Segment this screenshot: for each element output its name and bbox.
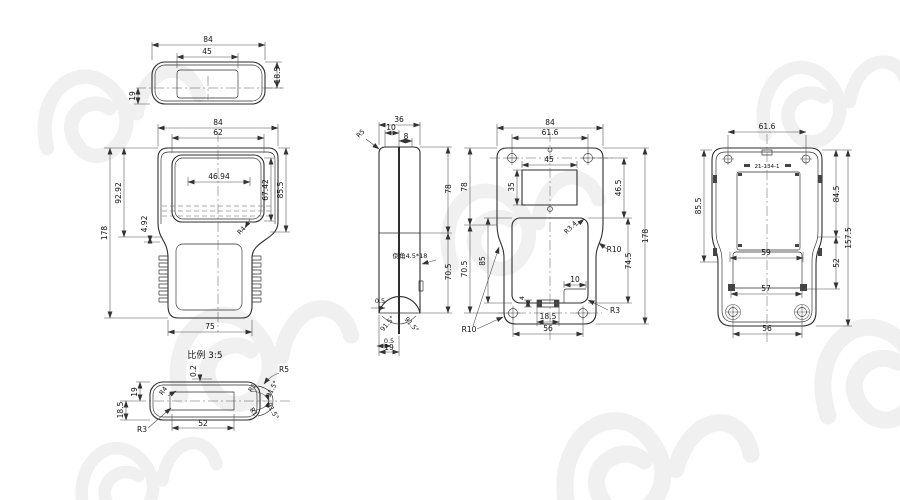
label-r5: R5: [279, 365, 289, 374]
label-91.5-right: 91.5°: [403, 315, 421, 334]
dim-46.94: 46.94: [208, 172, 230, 181]
dim-84: 84: [545, 118, 555, 127]
scale-label: 比例 3:5: [187, 349, 222, 361]
view-front: 84 62 46.94 67.42 85.5 92.92 4.92 178 75…: [100, 118, 290, 336]
label-r3: R3: [610, 306, 620, 315]
dim-8: 8: [404, 132, 409, 141]
snap-boss: [728, 284, 735, 291]
dim-45: 45: [544, 155, 554, 164]
engineering-drawing-page: 84 45 19 18.5 84: [0, 0, 900, 500]
snap-boss: [800, 284, 807, 291]
dim-75: 75: [205, 322, 215, 331]
dim-35: 35: [507, 182, 516, 192]
dim-46.5: 46.5: [614, 179, 623, 196]
dim-178: 178: [100, 226, 109, 241]
chamfer-note: 倒角4.5*18: [393, 251, 428, 260]
dim-18.5: 18.5: [273, 66, 282, 83]
dim-18.5: 18.5: [540, 312, 557, 321]
label-91.5-bottom: 91.5°: [265, 401, 280, 420]
cover-battery-door: [733, 252, 802, 288]
compartment-step: [564, 289, 586, 303]
dim-52: 52: [832, 258, 841, 268]
dim-59: 59: [761, 248, 771, 257]
cover-pcb-area: [737, 172, 800, 250]
label-r3.4: R3.4: [563, 220, 579, 236]
dim-4: 4: [518, 296, 526, 300]
view-cover: 61.6 21-134-1 85.5 84.5 52 157.5 59 57 5…: [694, 122, 853, 342]
label-r4: R4: [158, 385, 170, 397]
dim-4.92: 4.92: [140, 215, 149, 232]
cad-drawing-canvas: 84 45 19 18.5 84: [0, 0, 900, 500]
label-91.5-left: 91.5°: [379, 314, 397, 333]
dim-157.5: 157.5: [844, 227, 853, 249]
dim-70.5: 70.5: [444, 263, 453, 280]
dim-70.5: 70.5: [460, 260, 469, 277]
dim-61.6: 61.6: [759, 122, 776, 131]
label-r10-left: R10: [462, 325, 477, 334]
dim-45: 45: [202, 47, 212, 56]
dim-0.2: 0.2: [189, 365, 198, 377]
view-side: 36 10 8 R5 78 70.5 倒角4.5*18 0.5 91.5° 91…: [355, 115, 453, 356]
dim-0.5-top: 0.5: [375, 297, 385, 305]
dim-61.6: 61.6: [542, 128, 559, 137]
dim-19: 19: [130, 387, 139, 397]
dim-78: 78: [444, 184, 453, 194]
part-number: 21-134-1: [755, 164, 780, 170]
dim-62: 62: [213, 128, 223, 137]
dim-10: 10: [570, 275, 580, 284]
dim-178: 178: [641, 229, 650, 244]
dim-84: 84: [203, 35, 213, 44]
dim-56: 56: [762, 324, 772, 333]
front-grip-ribs: [159, 256, 261, 302]
view-top: 84 45 19 18.5: [128, 35, 284, 104]
dim-67.42: 67.42: [261, 179, 270, 201]
dim-92.92: 92.92: [114, 182, 123, 204]
front-lower-opening: [176, 244, 242, 310]
dim-84.5: 84.5: [832, 185, 841, 202]
view-back: 84 61.6 45 35 46.5 78 70.5 85 178 74.5 R…: [460, 118, 650, 340]
dim-85.5: 85.5: [694, 197, 703, 214]
dim-74.5: 74.5: [624, 252, 633, 269]
dim-52: 52: [198, 419, 208, 428]
label-r5: R5: [355, 128, 367, 140]
dim-56: 56: [543, 324, 553, 333]
dim-19: 19: [384, 343, 394, 352]
dim-18.5: 18.5: [116, 401, 125, 418]
label-r10-right: R10: [607, 245, 622, 254]
dim-10: 10: [386, 123, 396, 132]
dim-84: 84: [213, 118, 223, 127]
dim-19: 19: [128, 91, 137, 101]
dim-57: 57: [761, 284, 771, 293]
dim-78: 78: [460, 182, 469, 192]
label-r3: R3: [137, 425, 147, 434]
dim-85: 85: [478, 256, 487, 266]
dim-85.5: 85.5: [276, 181, 285, 198]
